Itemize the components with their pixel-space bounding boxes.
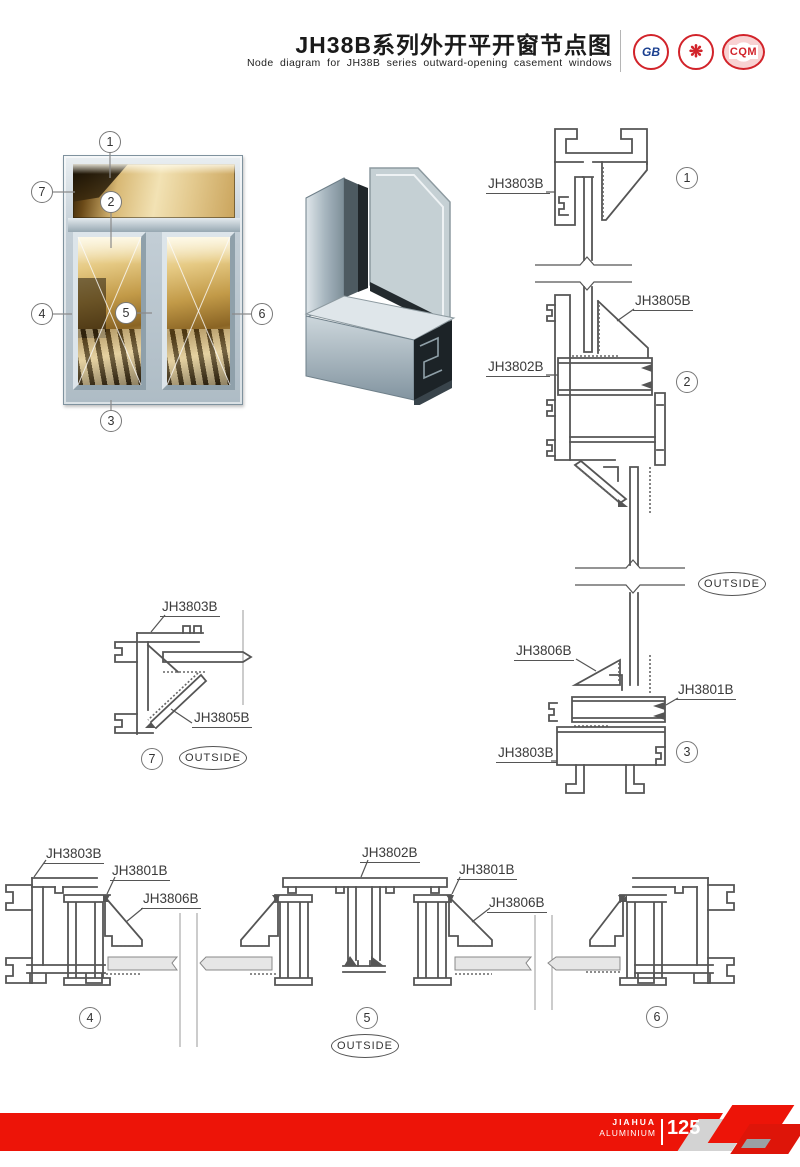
footer-brand-top: JIAHUA (540, 1117, 656, 1128)
d2-transom (558, 358, 652, 395)
d5-left-bead (241, 897, 278, 946)
d6-glazing-bead (590, 897, 623, 946)
d1-glass (583, 177, 593, 260)
d2-glass (630, 467, 638, 565)
glass-band-2 (455, 957, 531, 970)
d5-mullion-cover (283, 878, 447, 887)
vertical-section-drawing (480, 115, 800, 820)
glass-band-1 (108, 957, 177, 970)
window-callout-4: 4 (31, 303, 53, 325)
d5-left-sash (275, 895, 312, 985)
label-jh3806b-d3: JH3806B (514, 643, 574, 661)
label-jh3803b-d1: JH3803B (486, 176, 550, 194)
section-callout-7: 7 (141, 748, 163, 770)
section-callout-2: 2 (676, 371, 698, 393)
page-title-english: Node diagram for JH38B series outward-op… (247, 57, 612, 69)
d6-frame (633, 878, 708, 887)
d4-frame (32, 878, 97, 887)
label-jh3801b-d3: JH3801B (676, 682, 736, 700)
d5-right-bead (449, 897, 492, 946)
d3-sash (572, 697, 665, 722)
outside-label-right: OUTSIDE (698, 572, 766, 596)
cqm-text: CQM (729, 45, 758, 59)
d7-frame (137, 633, 203, 642)
d4-glazing-bead (105, 897, 142, 946)
d3-frame-sill (557, 727, 665, 765)
section-callout-6: 6 (646, 1006, 668, 1028)
window-callout-lines (20, 125, 290, 435)
window-callout-7: 7 (31, 181, 53, 203)
cqm-cert-logo: CQM (722, 34, 765, 70)
window-callout-2: 2 (100, 191, 122, 213)
section-callout-5: 5 (356, 1007, 378, 1029)
d3-glazing-bead (575, 660, 620, 685)
page-number: 125 (667, 1117, 700, 1140)
section-callout-4: 4 (79, 1007, 101, 1029)
label-jh3801b-d5: JH3801B (457, 862, 517, 880)
footer-brand: JIAHUA ALUMINIUM (540, 1117, 656, 1138)
outside-label-bottom: OUTSIDE (331, 1034, 399, 1058)
gb-cert-logo: GB (633, 34, 669, 70)
label-jh3805b-d2: JH3805B (633, 293, 693, 311)
footer-divider (661, 1119, 663, 1145)
section-callout-3: 3 (676, 741, 698, 763)
window-callout-3: 3 (100, 410, 122, 432)
outside-label-d7: OUTSIDE (179, 746, 247, 770)
header-divider (620, 30, 621, 72)
section-callout-1: 1 (676, 167, 698, 189)
label-jh3806b-d5: JH3806B (487, 895, 547, 913)
glass-break-symbol (535, 257, 632, 290)
label-jh3802b-d5: JH3802B (360, 845, 420, 863)
label-jh3803b-d7: JH3803B (160, 599, 220, 617)
corner-profile-render (292, 150, 477, 405)
label-jh3805b-d7: JH3805B (192, 710, 252, 728)
window-callout-5: 5 (115, 302, 137, 324)
label-jh3806b-d4: JH3806B (141, 891, 201, 909)
vertical-leg (306, 178, 344, 318)
glass-pane (370, 168, 450, 325)
d4-sash (64, 895, 110, 985)
page-title-chinese: JH38B系列外开平开窗节点图 (295, 26, 612, 60)
label-jh3803b-d4: JH3803B (44, 846, 104, 864)
window-callout-6: 6 (251, 303, 273, 325)
label-jh3803b-d3: JH3803B (496, 745, 557, 763)
d7-glass (163, 652, 251, 662)
d5-right-sash (414, 895, 451, 985)
catalog-page: JH38B系列外开平开窗节点图 Node diagram for JH38B s… (0, 0, 800, 1167)
d1-glazing-bead (602, 162, 647, 220)
d1-frame-head (555, 129, 647, 164)
round-seal-logo: ❋ (678, 34, 714, 70)
footer-brand-bottom: ALUMINIUM (540, 1128, 656, 1139)
d6-sash (620, 895, 666, 985)
label-jh3801b-d4: JH3801B (110, 863, 170, 881)
label-jh3802b-d2: JH3802B (486, 359, 550, 377)
window-callout-1: 1 (99, 131, 121, 153)
